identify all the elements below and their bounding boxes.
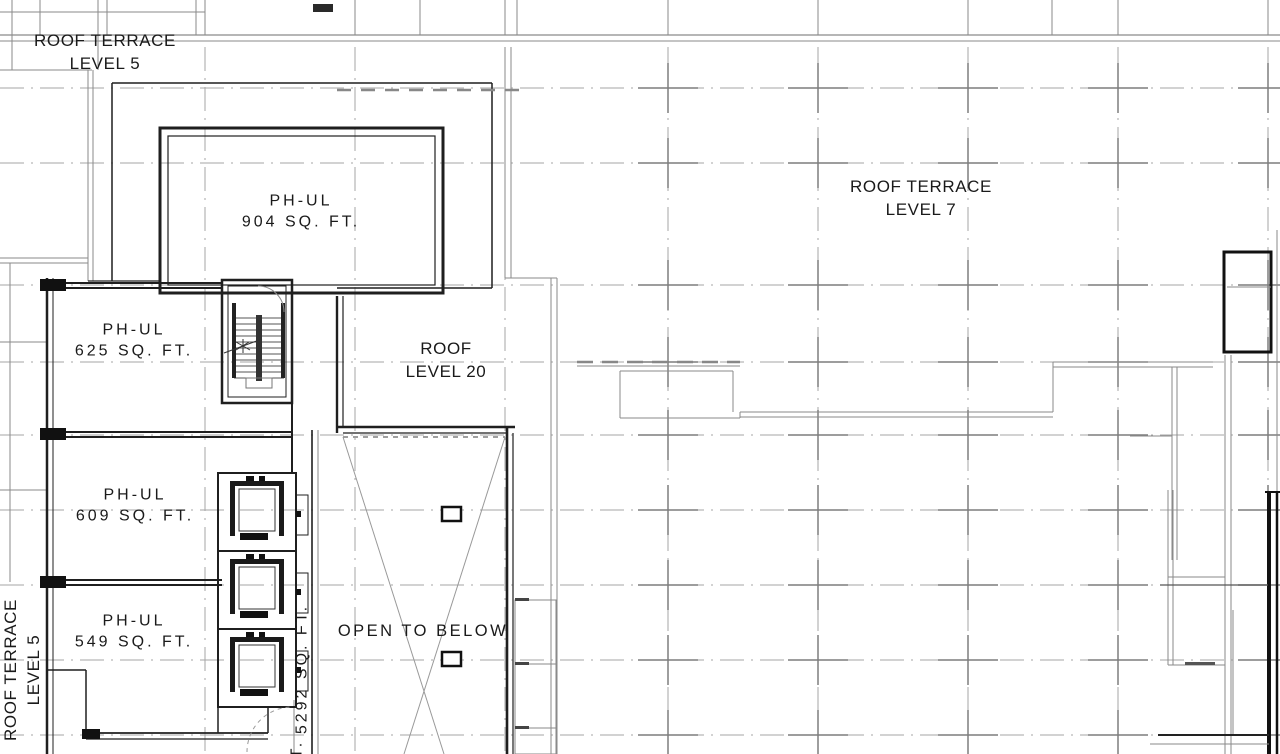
label-ph-ul-904: PH-UL 904 SQ. FT. xyxy=(242,191,360,234)
label-roof-terrace-level5-side: ROOF TERRACE LEVEL 5 xyxy=(0,599,46,741)
label-roof-terrace-level5-top: ROOF TERRACE LEVEL 5 xyxy=(34,30,176,76)
label-ph-ul-549: PH-UL 549 SQ. FT. xyxy=(75,611,193,654)
floor-plan: ROOF TERRACE LEVEL 5 PH-UL 904 SQ. FT. P… xyxy=(0,0,1280,754)
label-area-5292: 5292 SQ. FT. xyxy=(291,604,312,734)
label-roof-level20: ROOF LEVEL 20 xyxy=(406,338,487,384)
label-partial-text: T. xyxy=(286,740,307,754)
label-open-to-below: OPEN TO BELOW xyxy=(338,620,508,642)
label-ph-ul-625: PH-UL 625 SQ. FT. xyxy=(75,320,193,363)
label-roof-terrace-level7: ROOF TERRACE LEVEL 7 xyxy=(850,176,992,222)
label-ph-ul-609: PH-UL 609 SQ. FT. xyxy=(76,485,194,528)
